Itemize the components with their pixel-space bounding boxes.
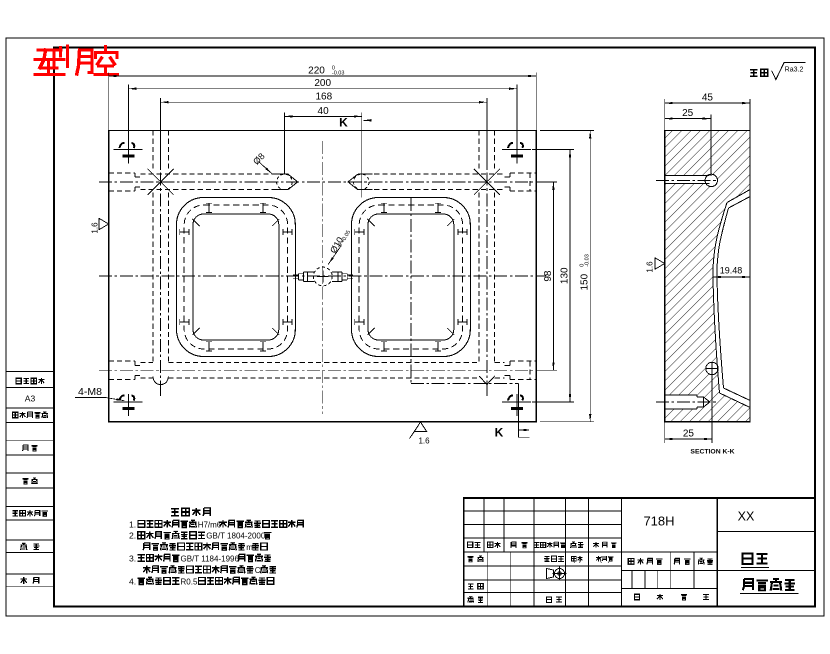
svg-text:1.6: 1.6 xyxy=(418,437,430,446)
svg-text:1.: 1. xyxy=(129,519,136,529)
svg-text:GB/T 1184-1996: GB/T 1184-1996 xyxy=(181,554,240,563)
svg-text:R0.5: R0.5 xyxy=(181,577,198,586)
svg-text:220: 220 xyxy=(308,66,325,77)
svg-text:2.: 2. xyxy=(129,531,136,541)
svg-text:XX: XX xyxy=(738,510,755,524)
svg-text:25: 25 xyxy=(682,108,694,119)
svg-text:45: 45 xyxy=(702,93,714,104)
svg-text:-0.03: -0.03 xyxy=(585,254,591,267)
svg-text:Ra3.2: Ra3.2 xyxy=(785,66,804,73)
svg-text:19.48: 19.48 xyxy=(720,266,743,276)
svg-text:-0.03: -0.03 xyxy=(332,71,345,77)
svg-text:H7/m6: H7/m6 xyxy=(198,520,222,529)
svg-text:K: K xyxy=(339,116,348,130)
svg-text:m: m xyxy=(246,543,253,552)
svg-text:3.: 3. xyxy=(129,553,136,563)
svg-text:1.6: 1.6 xyxy=(91,222,100,234)
svg-text:98: 98 xyxy=(543,270,554,282)
svg-text:GB/T 1804-2000: GB/T 1804-2000 xyxy=(206,532,266,541)
svg-text:C: C xyxy=(255,566,261,575)
svg-text:K: K xyxy=(495,426,504,440)
svg-text:SECTION K-K: SECTION K-K xyxy=(690,449,734,456)
svg-text:168: 168 xyxy=(315,92,332,103)
svg-text:718H: 718H xyxy=(643,514,674,529)
svg-text:4-M8: 4-M8 xyxy=(78,386,102,398)
svg-text:1.6: 1.6 xyxy=(646,261,655,273)
svg-text:25: 25 xyxy=(683,429,695,440)
svg-text:200: 200 xyxy=(314,78,331,89)
svg-text:40: 40 xyxy=(318,106,330,117)
svg-text:150: 150 xyxy=(580,273,591,290)
svg-text:130: 130 xyxy=(560,267,571,284)
svg-text:4.: 4. xyxy=(129,576,136,586)
svg-text:A3: A3 xyxy=(25,393,36,403)
